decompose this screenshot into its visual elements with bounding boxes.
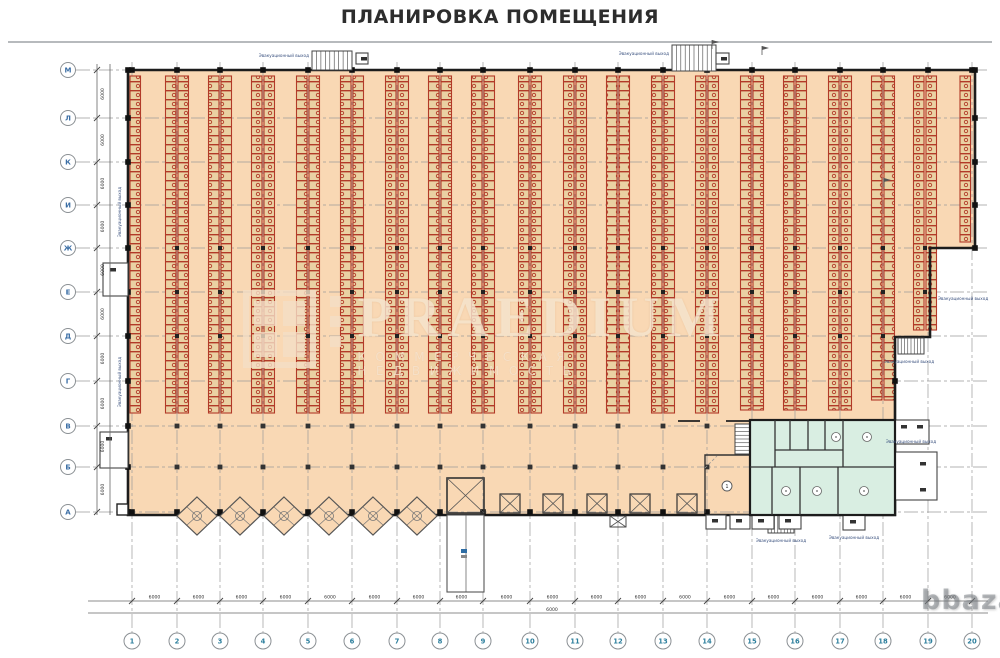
rack-tie-mark — [350, 246, 354, 250]
door-mark — [920, 488, 926, 492]
column-axis-label: 14 — [702, 638, 712, 646]
rack-tie-mark — [350, 334, 354, 338]
exit-label: Эвакуационный выход — [619, 51, 669, 56]
rack-row — [564, 76, 575, 413]
structural-column — [616, 424, 621, 429]
rack-row — [341, 76, 352, 413]
door-mark — [110, 268, 116, 272]
rack-tie-mark — [616, 246, 620, 250]
row-axis-label: В — [65, 422, 70, 430]
rack-tie-mark — [705, 246, 709, 250]
floor-plan-canvas: ПЛАНИРОВКА ПОМЕЩЕНИЯ 1 60006000600060006… — [0, 0, 1000, 658]
dim-value: 6000 — [944, 595, 956, 601]
row-axis-label: Г — [66, 377, 71, 385]
rack-tie-mark — [793, 334, 797, 338]
rack-tie-mark — [573, 334, 577, 338]
rack-row — [696, 76, 707, 413]
dim-value: 6000 — [100, 134, 106, 146]
dim-value: 6000 — [100, 88, 106, 100]
structural-column — [175, 465, 180, 470]
column-axis-label: 9 — [481, 638, 486, 646]
dim-value: 6000 — [768, 595, 780, 601]
row-axis-label: Л — [65, 114, 71, 122]
row-axis-label: Д — [65, 332, 71, 340]
row-axis-label: М — [65, 66, 72, 74]
column-axis-label: 2 — [175, 638, 180, 646]
wall-column — [349, 509, 355, 515]
rack-tie-mark — [175, 246, 179, 250]
dim-value: 6000 — [724, 595, 736, 601]
wall-column — [125, 423, 131, 429]
rack-tie-mark — [750, 290, 754, 294]
door-mark — [721, 57, 727, 61]
rack-row — [607, 76, 618, 413]
wall-column — [572, 67, 578, 73]
rack-row — [166, 76, 177, 413]
rack-row — [829, 76, 840, 410]
wall-column — [480, 67, 486, 73]
wall-column — [125, 67, 131, 73]
rack-tie-mark — [573, 290, 577, 294]
rack-tie-mark — [481, 246, 485, 250]
office-room-dot — [835, 436, 837, 438]
staircase — [312, 51, 352, 70]
rack-tie-mark — [661, 334, 665, 338]
wall-column — [892, 378, 898, 384]
structural-column — [661, 465, 666, 470]
column-axis-label: 18 — [878, 638, 888, 646]
structural-column — [438, 465, 443, 470]
office-room-dot — [866, 436, 868, 438]
dim-value: 6000 — [280, 595, 292, 601]
dim-value: 6000 — [635, 595, 647, 601]
rack-row — [178, 76, 189, 413]
rack-tie-mark — [573, 246, 577, 250]
door-mark — [785, 519, 791, 523]
flag-icon — [712, 40, 719, 44]
rack-row — [753, 76, 764, 410]
rack-tie-mark — [438, 246, 442, 250]
dim-value: 6000 — [369, 595, 381, 601]
wall-column — [972, 245, 978, 251]
door-mark — [917, 425, 923, 429]
structural-column — [218, 424, 223, 429]
rack-row — [252, 76, 263, 413]
structural-column — [261, 424, 266, 429]
rack-row — [209, 76, 220, 413]
wall-column — [125, 333, 131, 339]
wall-column — [615, 509, 621, 515]
rack-tie-mark — [616, 334, 620, 338]
column-axis-label: 20 — [967, 638, 977, 646]
office-room-dot — [816, 490, 818, 492]
rack-tie-mark — [395, 290, 399, 294]
rack-row — [221, 76, 232, 413]
corner-pier — [117, 504, 128, 515]
dim-value: 6000 — [546, 607, 558, 613]
column-axis-label: 11 — [570, 638, 580, 646]
rack-tie-mark — [306, 290, 310, 294]
wall-column — [972, 159, 978, 165]
dim-value: 6000 — [149, 595, 161, 601]
wall-column — [972, 202, 978, 208]
door-mark — [758, 519, 764, 523]
wall-column — [615, 67, 621, 73]
dim-value: 6000 — [324, 595, 336, 601]
rack-tie-mark — [528, 246, 532, 250]
rack-row — [472, 76, 483, 413]
door-mark — [736, 519, 742, 523]
exit-label: Эвакуационный выход — [886, 439, 936, 444]
wall-column — [527, 509, 533, 515]
wall-column — [260, 509, 266, 515]
structural-column — [306, 465, 311, 470]
wall-column — [572, 509, 578, 515]
exit-label: Эвакуационный выход — [829, 535, 879, 540]
rack-tie-mark — [881, 334, 885, 338]
rack-tie-mark — [528, 290, 532, 294]
rack-row — [297, 76, 308, 413]
column-axis-label: 5 — [306, 638, 311, 646]
rack-tie-mark — [838, 334, 842, 338]
column-axis-label: 6 — [350, 638, 355, 646]
rack-tie-mark — [438, 290, 442, 294]
structural-column — [573, 465, 578, 470]
structural-column — [306, 424, 311, 429]
dim-value: 6000 — [501, 595, 513, 601]
structural-column — [616, 465, 621, 470]
ramp-mark — [461, 549, 467, 553]
structural-column — [175, 424, 180, 429]
wall-column — [660, 67, 666, 73]
column-axis-label: 16 — [790, 638, 800, 646]
rack-tie-mark — [306, 334, 310, 338]
wall-column — [125, 202, 131, 208]
wall-column — [527, 67, 533, 73]
ramp-outline — [447, 515, 484, 592]
wall-column — [792, 67, 798, 73]
annex-room — [893, 452, 937, 500]
wall-column — [125, 378, 131, 384]
row-axis-label: А — [65, 508, 71, 516]
rack-tie-mark — [528, 334, 532, 338]
wall-column — [837, 67, 843, 73]
door-mark — [106, 437, 112, 441]
dim-value: 6000 — [591, 595, 603, 601]
rack-row — [429, 76, 440, 413]
wall-column — [174, 67, 180, 73]
structural-column — [218, 465, 223, 470]
rack-tie-mark — [750, 334, 754, 338]
dim-value: 6000 — [100, 308, 106, 320]
rack-tie-mark — [218, 290, 222, 294]
dim-value: 6000 — [100, 484, 106, 496]
rack-tie-mark — [881, 290, 885, 294]
dim-value: 6000 — [100, 353, 106, 365]
structural-column — [395, 424, 400, 429]
wall-column — [437, 509, 443, 515]
rack-tie-mark — [793, 246, 797, 250]
rack-row — [619, 76, 630, 413]
dim-value: 6000 — [236, 595, 248, 601]
rack-tie-mark — [395, 246, 399, 250]
rack-row — [386, 76, 397, 413]
rack-row — [884, 76, 895, 400]
exit-label: Эвакуационный выход — [884, 359, 934, 364]
dim-value: 6000 — [100, 398, 106, 410]
wall-column — [749, 67, 755, 73]
wall-column — [305, 67, 311, 73]
rack-tie-mark — [923, 246, 927, 250]
structural-column — [661, 424, 666, 429]
wall-column — [660, 509, 666, 515]
row-axis-label: К — [65, 158, 71, 166]
rack-tie-mark — [218, 334, 222, 338]
door-mark — [920, 462, 926, 466]
column-axis-label: 4 — [261, 638, 266, 646]
dim-value: 6000 — [100, 221, 106, 233]
rack-tie-mark — [838, 290, 842, 294]
rack-tie-mark — [661, 290, 665, 294]
structural-column — [481, 465, 486, 470]
wall-column — [125, 115, 131, 121]
exit-label: Эвакуационный выход — [259, 53, 309, 58]
rack-tie-mark — [175, 334, 179, 338]
wall-column — [260, 67, 266, 73]
row-axis-label: И — [65, 201, 71, 209]
rack-row — [398, 76, 409, 413]
exit-label: Эвакуационный выход — [938, 296, 988, 301]
rack-tie-mark — [923, 290, 927, 294]
rack-row — [353, 76, 364, 413]
rack-tie-mark — [481, 334, 485, 338]
dim-value: 6000 — [100, 264, 106, 276]
rack-tie-mark — [261, 290, 265, 294]
row-axis-label: Е — [66, 288, 71, 296]
structural-column — [350, 465, 355, 470]
rack-row — [576, 76, 587, 413]
rack-tie-mark — [261, 334, 265, 338]
rack-row — [796, 76, 807, 410]
dim-value: 6000 — [856, 595, 868, 601]
dim-value: 6000 — [900, 595, 912, 601]
column-axis-label: 7 — [395, 638, 400, 646]
rack-row — [441, 76, 452, 413]
door-mark — [850, 520, 856, 524]
column-axis-label: 19 — [923, 638, 933, 646]
wall-column — [305, 509, 311, 515]
rack-tie-mark — [218, 246, 222, 250]
rack-row — [531, 76, 542, 413]
rack-tie-mark — [395, 334, 399, 338]
dim-value: 6000 — [456, 595, 468, 601]
rack-row — [484, 76, 495, 413]
rack-row — [960, 76, 971, 242]
room-number: 1 — [725, 484, 728, 490]
rack-row — [914, 76, 925, 330]
rack-row — [652, 76, 663, 413]
column-axis-label: 15 — [747, 638, 757, 646]
rack-row — [741, 76, 752, 410]
wall-column — [437, 67, 443, 73]
structural-column — [573, 424, 578, 429]
rack-tie-mark — [481, 290, 485, 294]
flag-icon — [762, 46, 769, 50]
office-room-dot — [863, 490, 865, 492]
column-axis-label: 8 — [438, 638, 443, 646]
wall-column — [217, 67, 223, 73]
structural-column — [481, 424, 486, 429]
column-axis-label: 1 — [130, 638, 135, 646]
row-axis-label: Б — [65, 463, 70, 471]
structural-column — [395, 465, 400, 470]
row-axis-label: Ж — [64, 244, 73, 252]
rack-tie-mark — [306, 246, 310, 250]
rack-row — [519, 76, 530, 413]
column-axis-label: 13 — [658, 638, 668, 646]
column-axis-label: 3 — [218, 638, 223, 646]
rack-tie-mark — [793, 290, 797, 294]
dim-value: 6000 — [100, 178, 106, 190]
rack-tie-mark — [705, 334, 709, 338]
rack-row — [708, 76, 719, 413]
rack-row — [784, 76, 795, 410]
rack-row — [309, 76, 320, 413]
office-block — [750, 420, 895, 515]
door-mark — [361, 57, 367, 61]
rack-tie-mark — [261, 246, 265, 250]
rack-tie-mark — [616, 290, 620, 294]
door-mark — [712, 519, 718, 523]
dim-value: 6000 — [679, 595, 691, 601]
structural-column — [705, 424, 710, 429]
floor-plan-drawing: 1 60006000600060006000600060006000600060… — [0, 0, 1000, 658]
office-room-dot — [785, 490, 787, 492]
exit-label: Эвакуационный выход — [756, 538, 806, 543]
structural-column — [528, 465, 533, 470]
dim-value: 6000 — [100, 441, 106, 453]
rack-tie-mark — [438, 334, 442, 338]
rack-row — [130, 76, 141, 413]
structural-column — [261, 465, 266, 470]
rack-row — [664, 76, 675, 413]
wall-column — [880, 67, 886, 73]
wall-column — [925, 67, 931, 73]
structural-column — [438, 424, 443, 429]
wall-column — [972, 67, 978, 73]
rack-row — [841, 76, 852, 410]
column-axis-label: 10 — [525, 638, 535, 646]
exit-label: Эвакуационный выход — [117, 187, 122, 237]
door-mark — [901, 425, 907, 429]
structural-column — [350, 424, 355, 429]
ramp-mark — [461, 555, 467, 558]
dim-value: 6000 — [193, 595, 205, 601]
rack-tie-mark — [881, 246, 885, 250]
exit-label: Эвакуационный выход — [117, 357, 122, 407]
wall-column — [125, 245, 131, 251]
rack-row — [264, 76, 275, 413]
dim-value: 6000 — [413, 595, 425, 601]
wall-column — [394, 67, 400, 73]
column-axis-label: 17 — [835, 638, 845, 646]
rack-row — [872, 76, 883, 400]
rack-tie-mark — [838, 246, 842, 250]
dim-value: 6000 — [547, 595, 559, 601]
rack-tie-mark — [705, 290, 709, 294]
rack-tie-mark — [350, 290, 354, 294]
rack-tie-mark — [750, 246, 754, 250]
wall-column — [972, 115, 978, 121]
wall-column — [125, 159, 131, 165]
rack-tie-mark — [175, 290, 179, 294]
column-axis-label: 12 — [613, 638, 623, 646]
annex-room — [103, 263, 128, 296]
dim-value: 6000 — [812, 595, 824, 601]
structural-column — [528, 424, 533, 429]
rack-tie-mark — [661, 246, 665, 250]
